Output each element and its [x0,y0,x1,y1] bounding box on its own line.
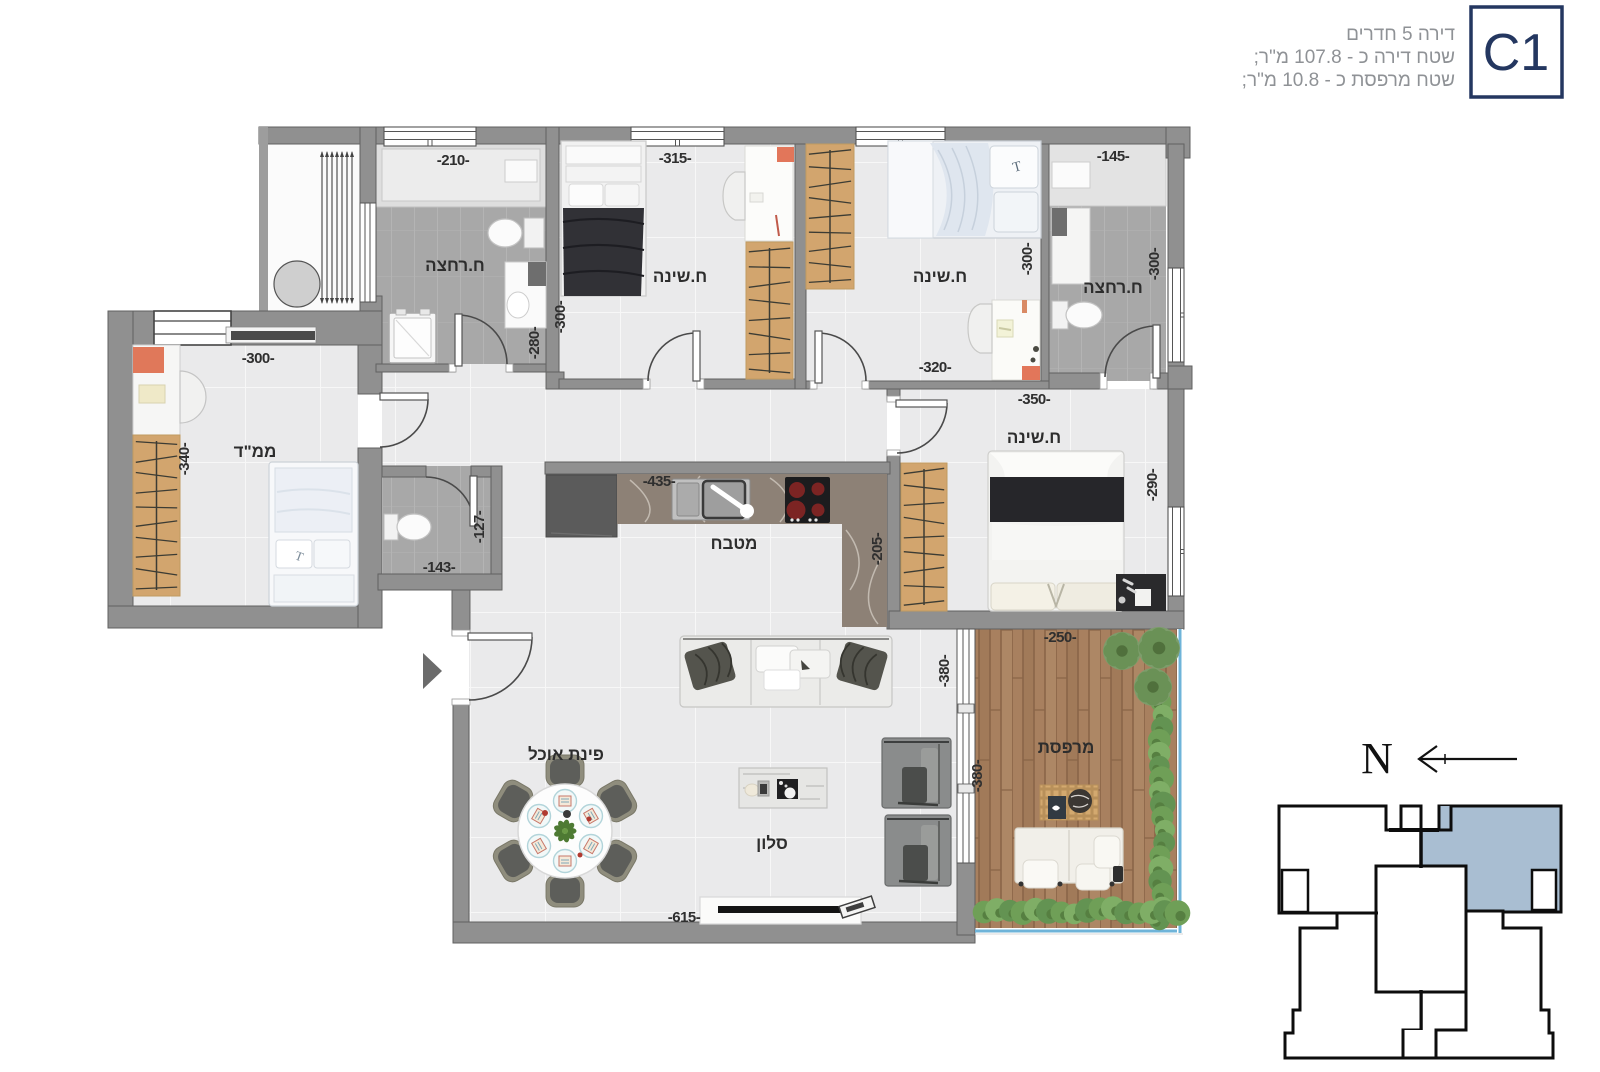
svg-text:-300-: -300- [552,300,569,333]
svg-text:C1: C1 [1483,24,1549,82]
svg-text:-380-: -380- [936,654,953,687]
svg-text:-143-: -143- [423,559,456,576]
svg-text:ח.רחצה: ח.רחצה [1083,278,1143,297]
svg-text:-290-: -290- [1144,468,1161,501]
svg-text:-145-: -145- [1097,148,1130,165]
svg-text:מטבח: מטבח [711,534,758,553]
svg-text:ח.שינה: ח.שינה [653,267,707,286]
svg-text:-315-: -315- [659,150,692,167]
svg-text:ח.שינה: ח.שינה [913,267,967,286]
svg-text:-300-: -300- [1146,247,1163,280]
svg-text:-250-: -250- [1044,629,1077,646]
svg-text:שטח מרפסת כ - 10.8 מ"ר;: שטח מרפסת כ - 10.8 מ"ר; [1242,70,1455,91]
svg-text:מרפסת: מרפסת [1038,738,1095,757]
svg-text:ח.רחצה: ח.רחצה [425,256,485,275]
svg-text:פינת אוכל: פינת אוכל [528,745,604,764]
svg-text:-300-: -300- [242,350,275,367]
svg-text:-380-: -380- [969,759,986,792]
svg-text:-127-: -127- [471,510,488,543]
svg-text:-280-: -280- [526,326,543,359]
svg-text:-615-: -615- [668,909,701,926]
svg-text:-350-: -350- [1018,391,1051,408]
svg-text:דירה 5 חדרים: דירה 5 חדרים [1346,24,1455,45]
svg-text:שטח דירה כ - 107.8 מ"ר;: שטח דירה כ - 107.8 מ"ר; [1254,47,1455,68]
svg-text:ח.שינה: ח.שינה [1007,428,1061,447]
svg-text:-205-: -205- [869,532,886,565]
svg-text:-340-: -340- [176,442,193,475]
svg-text:ממ"ד: ממ"ד [234,442,277,461]
svg-text:N: N [1361,734,1393,783]
svg-text:-435-: -435- [643,473,676,490]
svg-text:סלון: סלון [756,834,788,853]
svg-text:-300-: -300- [1019,242,1036,275]
svg-text:-210-: -210- [437,152,470,169]
svg-text:-320-: -320- [919,359,952,376]
